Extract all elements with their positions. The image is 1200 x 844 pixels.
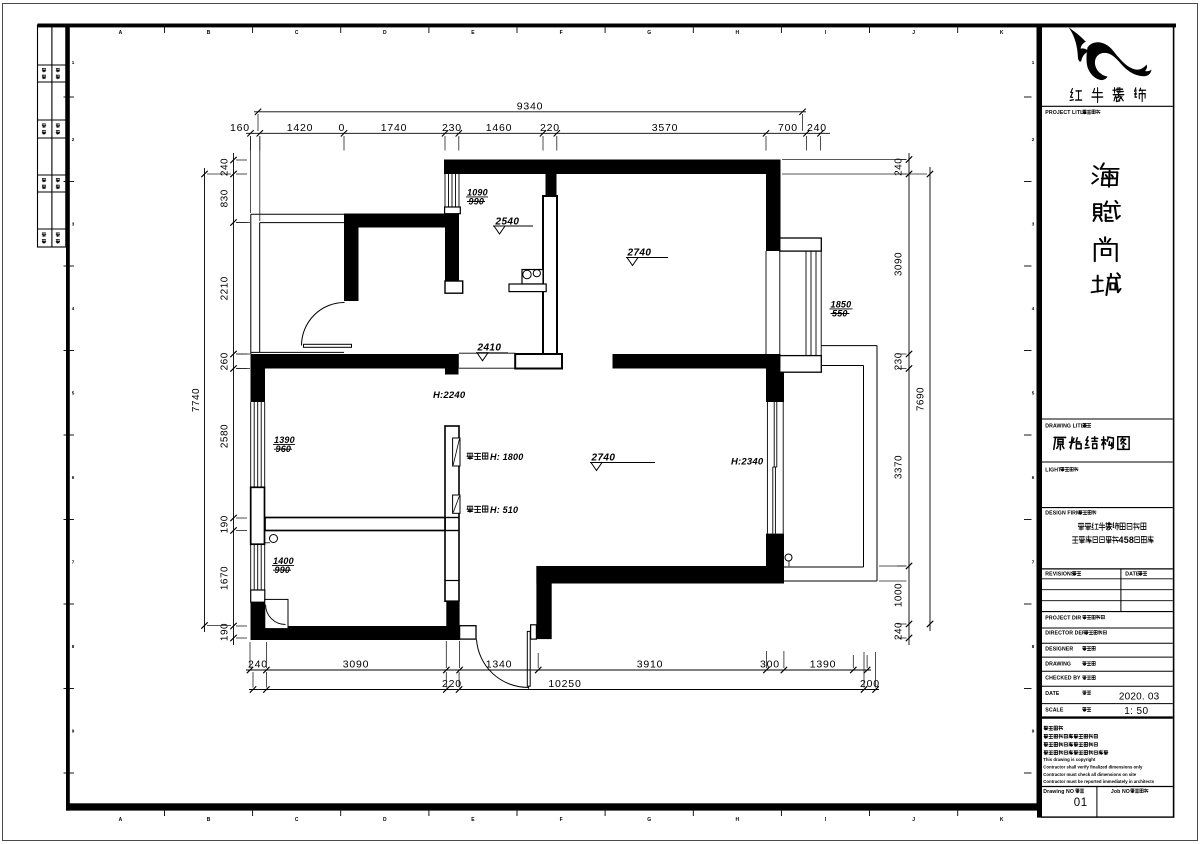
svg-text:458: 458 [1119, 535, 1135, 545]
svg-text:2740: 2740 [591, 453, 616, 464]
svg-text:5: 5 [1032, 391, 1035, 396]
svg-text:This drawing is copyright: This drawing is copyright [1043, 757, 1096, 762]
svg-text:Contractor must check all dime: Contractor must check all dimensions on … [1043, 772, 1136, 777]
svg-text:1: 1 [72, 60, 75, 65]
svg-text:7: 7 [1032, 560, 1035, 565]
svg-text:K: K [1000, 817, 1004, 823]
svg-text:Job NO: Job NO [1111, 789, 1130, 795]
svg-text:1460: 1460 [486, 122, 513, 134]
svg-text:DRAWING LITLE: DRAWING LITLE [1045, 423, 1088, 429]
svg-text:260: 260 [220, 352, 231, 370]
svg-text:2: 2 [72, 137, 75, 142]
svg-text:200: 200 [860, 678, 880, 690]
svg-text:830: 830 [220, 189, 231, 207]
svg-text:J: J [912, 30, 915, 36]
svg-text:DRAWING: DRAWING [1045, 662, 1071, 668]
svg-text:DIRECTOR DER: DIRECTOR DER [1045, 631, 1086, 637]
svg-text:01: 01 [1074, 797, 1088, 809]
svg-text:DATE: DATE [1125, 572, 1140, 578]
svg-text:1740: 1740 [381, 122, 408, 134]
svg-text:700: 700 [778, 122, 798, 134]
svg-text:PROJECT LITLE: PROJECT LITLE [1045, 110, 1087, 116]
svg-text:CHECKED BY: CHECKED BY [1045, 676, 1081, 682]
svg-text:PROJECT DIR: PROJECT DIR [1045, 615, 1081, 621]
svg-text:9: 9 [72, 729, 75, 734]
svg-text:300: 300 [760, 658, 780, 670]
svg-text:K: K [1000, 30, 1004, 36]
svg-text:REVISIONS: REVISIONS [1045, 572, 1075, 578]
svg-text:230: 230 [442, 122, 462, 134]
svg-text:6: 6 [72, 475, 75, 480]
svg-text:DESIGNER: DESIGNER [1045, 647, 1073, 653]
svg-text:H: H [735, 817, 739, 823]
svg-text:J: J [912, 817, 915, 823]
svg-text:Drawing NO: Drawing NO [1043, 789, 1074, 795]
svg-text:3: 3 [72, 222, 75, 227]
svg-text:6: 6 [1032, 475, 1035, 480]
svg-text:3370: 3370 [894, 455, 905, 479]
svg-text:H: 1800: H: 1800 [490, 452, 523, 462]
svg-text:C: C [295, 30, 299, 36]
svg-text:8: 8 [1032, 644, 1035, 649]
svg-text:1: 50: 1: 50 [1124, 706, 1148, 717]
svg-text:7740: 7740 [191, 388, 202, 412]
svg-text:0: 0 [338, 122, 345, 134]
svg-text:3910: 3910 [637, 658, 664, 670]
svg-text:7: 7 [72, 560, 75, 565]
svg-text:240: 240 [894, 158, 905, 176]
svg-text:9: 9 [1032, 729, 1035, 734]
svg-text:H: H [735, 30, 739, 36]
svg-text:Contractor must be reported im: Contractor must be reported immediately … [1043, 779, 1154, 784]
svg-text:5: 5 [72, 391, 75, 396]
svg-text:3: 3 [1032, 222, 1035, 227]
svg-text:220: 220 [540, 122, 560, 134]
svg-text:4: 4 [1032, 306, 1035, 311]
svg-text:240: 240 [894, 622, 905, 640]
svg-text:1: 1 [1032, 60, 1035, 65]
svg-text:DATE: DATE [1045, 691, 1060, 697]
svg-text:F: F [560, 30, 563, 36]
svg-text:H:2340: H:2340 [731, 457, 764, 468]
svg-text:G: G [647, 30, 651, 36]
svg-text:LIGHT: LIGHT [1045, 467, 1062, 473]
svg-text:1390: 1390 [810, 658, 837, 670]
svg-text:190: 190 [220, 515, 231, 533]
svg-text:Contractor shall verify finali: Contractor shall verify finalized dimens… [1043, 764, 1143, 769]
svg-text:240: 240 [807, 122, 827, 134]
svg-text:H:2240: H:2240 [433, 390, 466, 401]
svg-text:D: D [383, 30, 387, 36]
svg-text:2020. 03: 2020. 03 [1119, 691, 1160, 702]
svg-text:3090: 3090 [343, 658, 370, 670]
svg-text:2740: 2740 [627, 248, 652, 259]
svg-text:3570: 3570 [652, 122, 679, 134]
svg-text:4: 4 [72, 306, 75, 311]
svg-text:SCALE: SCALE [1045, 708, 1064, 714]
svg-text:B: B [207, 30, 211, 36]
svg-text:10250: 10250 [548, 678, 581, 690]
svg-text:160: 160 [230, 122, 250, 134]
svg-text:240: 240 [220, 158, 231, 176]
svg-text:1000: 1000 [894, 583, 905, 607]
svg-text:A: A [119, 817, 123, 823]
svg-text:G: G [647, 817, 651, 823]
svg-text:F: F [560, 817, 563, 823]
svg-text:A: A [119, 30, 123, 36]
svg-text:230: 230 [894, 352, 905, 370]
svg-text:H: 510: H: 510 [490, 505, 518, 515]
svg-text:B: B [207, 817, 211, 823]
svg-text:C: C [295, 817, 299, 823]
svg-text:7690: 7690 [916, 387, 927, 411]
svg-text:2410: 2410 [477, 343, 502, 354]
svg-text:1420: 1420 [287, 122, 314, 134]
svg-text:9340: 9340 [517, 100, 544, 112]
svg-text:D: D [383, 817, 387, 823]
svg-text:2210: 2210 [220, 276, 231, 300]
svg-text:240: 240 [248, 658, 268, 670]
svg-text:8: 8 [72, 644, 75, 649]
svg-text:DESIGN FIRM: DESIGN FIRM [1045, 511, 1080, 517]
svg-text:1670: 1670 [220, 566, 231, 590]
svg-text:3090: 3090 [894, 252, 905, 276]
svg-text:2: 2 [1032, 137, 1035, 142]
svg-text:1340: 1340 [486, 658, 513, 670]
svg-text:2580: 2580 [220, 424, 231, 448]
